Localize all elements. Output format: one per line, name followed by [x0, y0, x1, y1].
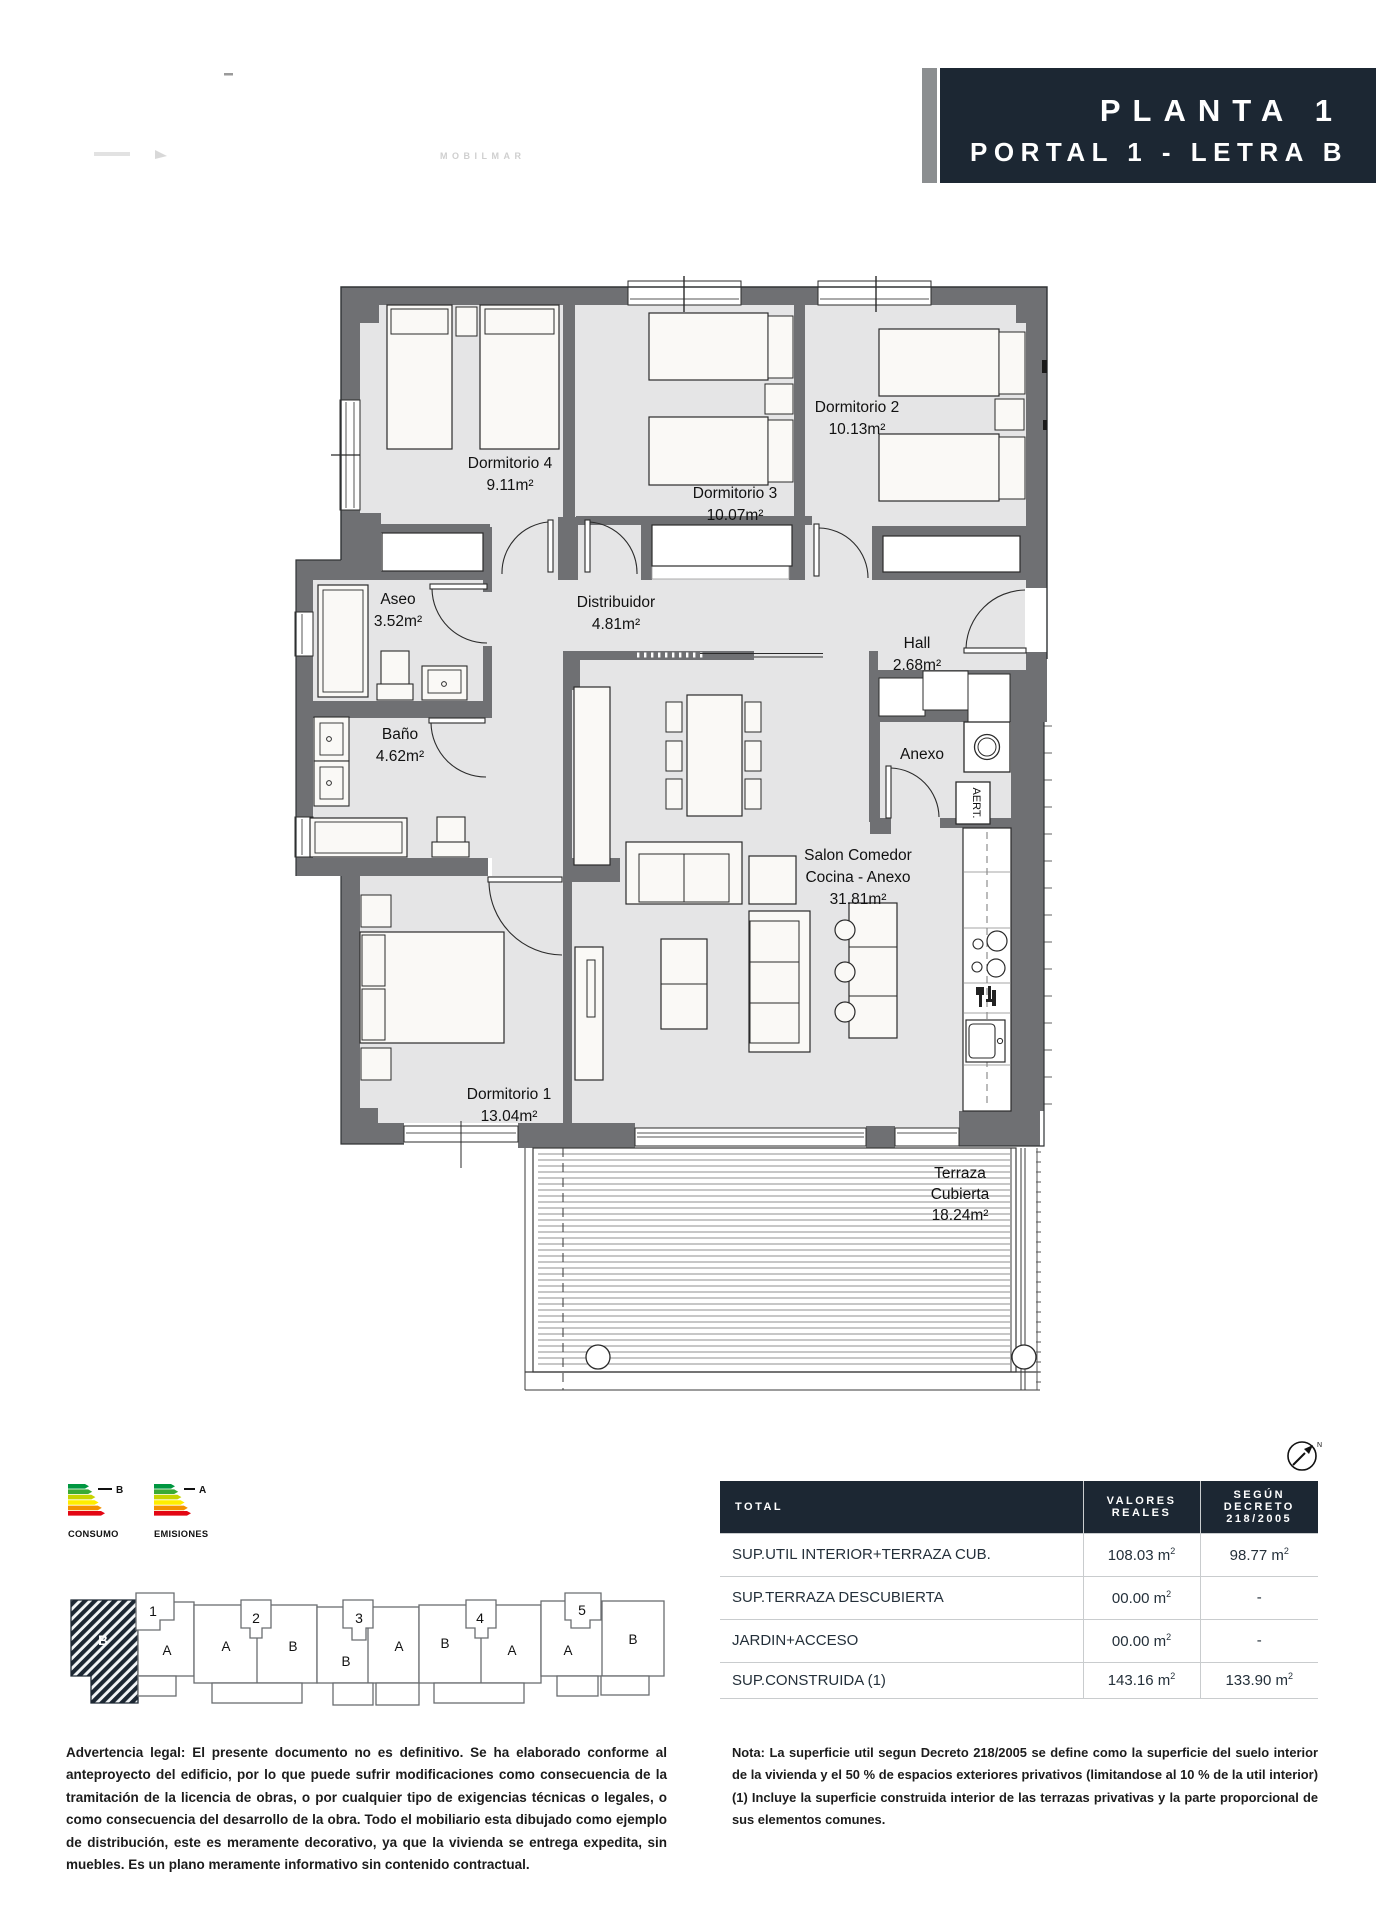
- svg-text:3: 3: [355, 1610, 363, 1626]
- svg-text:Cocina - Anexo: Cocina - Anexo: [805, 869, 910, 886]
- svg-text:31.81m²: 31.81m²: [830, 891, 887, 908]
- svg-text:18.24m²: 18.24m²: [932, 1207, 989, 1224]
- svg-text:B: B: [440, 1636, 449, 1651]
- svg-text:B: B: [341, 1654, 350, 1669]
- svg-text:EMISIONES: EMISIONES: [154, 1529, 208, 1539]
- svg-text:A: A: [162, 1643, 171, 1658]
- svg-text:Dormitorio 1: Dormitorio 1: [467, 1086, 551, 1103]
- svg-text:Salon Comedor: Salon Comedor: [804, 847, 912, 864]
- svg-text:AERT.: AERT.: [970, 788, 982, 819]
- svg-text:Dormitorio 3: Dormitorio 3: [693, 485, 777, 502]
- svg-text:Baño: Baño: [382, 726, 418, 743]
- svg-text:A: A: [199, 1485, 206, 1496]
- svg-text:Dormitorio 4: Dormitorio 4: [468, 455, 553, 472]
- svg-text:Distribuidor: Distribuidor: [577, 594, 655, 611]
- svg-text:B: B: [116, 1485, 123, 1496]
- svg-text:MOBILMAR: MOBILMAR: [440, 151, 526, 161]
- svg-text:13.04m²: 13.04m²: [481, 1108, 538, 1125]
- svg-text:PLANTA 1: PLANTA 1: [1100, 93, 1344, 128]
- svg-text:B: B: [98, 1633, 108, 1648]
- svg-text:Anexo: Anexo: [900, 746, 944, 763]
- svg-text:Dormitorio 2: Dormitorio 2: [815, 399, 899, 416]
- svg-text:PORTAL 1 - LETRA B: PORTAL 1 - LETRA B: [970, 137, 1348, 167]
- svg-text:1: 1: [149, 1603, 157, 1619]
- svg-text:A: A: [563, 1643, 572, 1658]
- svg-text:B: B: [288, 1639, 297, 1654]
- svg-text:9.11m²: 9.11m²: [486, 477, 533, 494]
- svg-text:A: A: [394, 1639, 403, 1654]
- svg-text:B: B: [628, 1632, 637, 1647]
- svg-text:Cubierta: Cubierta: [931, 1186, 990, 1203]
- svg-text:3.52m²: 3.52m²: [374, 613, 422, 630]
- svg-text:A: A: [221, 1639, 230, 1654]
- svg-text:2: 2: [252, 1610, 260, 1626]
- svg-text:10.13m²: 10.13m²: [829, 421, 886, 438]
- svg-text:4.81m²: 4.81m²: [592, 616, 640, 633]
- svg-text:4.62m²: 4.62m²: [376, 748, 424, 765]
- svg-text:Terraza: Terraza: [934, 1165, 986, 1182]
- svg-text:5: 5: [578, 1602, 586, 1618]
- svg-text:2.68m²: 2.68m²: [893, 657, 941, 674]
- svg-text:Hall: Hall: [904, 635, 931, 652]
- svg-text:CONSUMO: CONSUMO: [68, 1529, 119, 1539]
- svg-text:N: N: [1317, 1442, 1322, 1449]
- svg-text:10.07m²: 10.07m²: [707, 507, 764, 524]
- svg-text:A: A: [507, 1643, 516, 1658]
- svg-text:Aseo: Aseo: [380, 591, 415, 608]
- svg-text:4: 4: [476, 1610, 484, 1626]
